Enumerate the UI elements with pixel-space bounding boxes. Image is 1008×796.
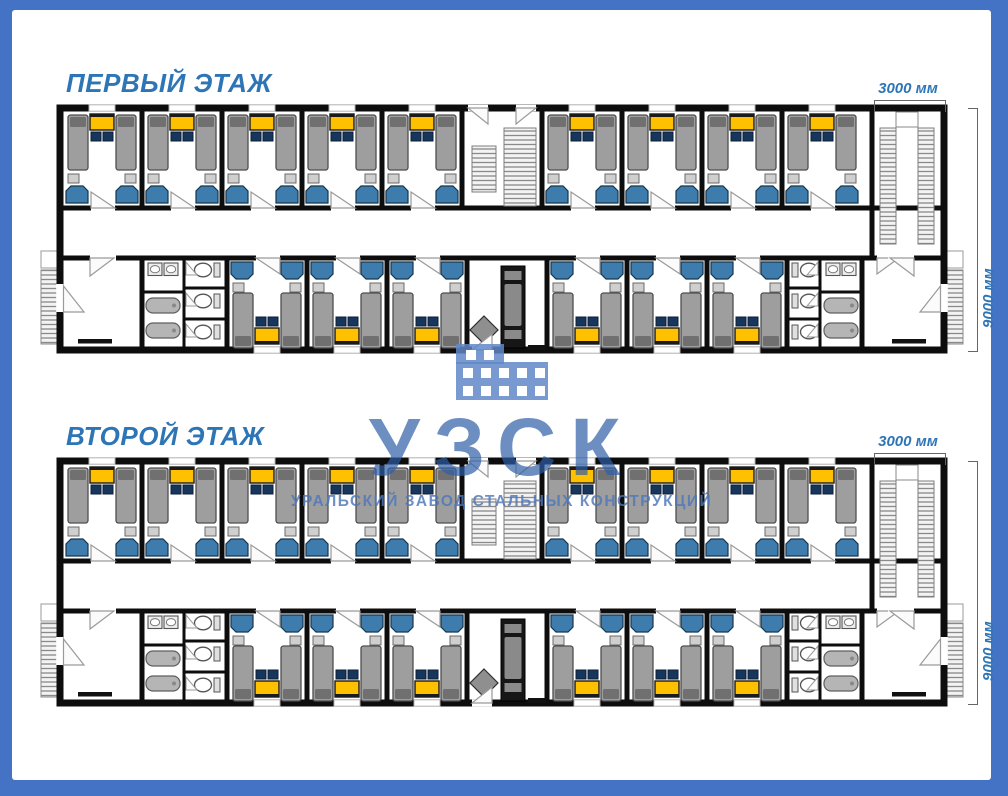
dining-table (810, 114, 834, 130)
nightstand (765, 174, 776, 183)
chair (343, 132, 353, 141)
chair (743, 132, 753, 141)
wardrobe (546, 539, 568, 556)
sink (826, 263, 840, 276)
bed (68, 115, 88, 170)
wardrobe (441, 262, 463, 279)
staircase (880, 128, 896, 244)
bed (148, 115, 168, 170)
chair (331, 132, 341, 141)
nightstand (205, 527, 216, 536)
wardrobe (626, 539, 648, 556)
nightstand (205, 174, 216, 183)
dining-table (655, 681, 679, 697)
dining-table (650, 467, 674, 483)
depth-dimension-bracket (968, 461, 978, 705)
dining-table (650, 114, 674, 130)
nightstand (708, 527, 719, 536)
wardrobe (711, 615, 733, 632)
window (254, 700, 280, 706)
bed (116, 115, 136, 170)
chair (263, 485, 273, 494)
doormat (528, 698, 546, 703)
bed (313, 646, 333, 701)
bed (836, 115, 856, 170)
nightstand (228, 527, 239, 536)
nightstand (633, 636, 644, 645)
wardrobe (626, 186, 648, 203)
wardrobe (551, 262, 573, 279)
wardrobe (196, 539, 218, 556)
chair (668, 670, 678, 679)
nightstand (370, 636, 381, 645)
window (574, 700, 600, 706)
bed (228, 115, 248, 170)
second-floor-section: ВТОРОЙ ЭТАЖ 3000 мм 9000 мм (32, 411, 1008, 719)
chair (268, 670, 278, 679)
nightstand (605, 174, 616, 183)
wardrobe (66, 186, 88, 203)
dining-table (255, 328, 279, 344)
chair (336, 317, 346, 326)
window (249, 458, 275, 464)
sink (842, 263, 856, 276)
nightstand (313, 283, 324, 292)
first-floor-plan (32, 102, 977, 358)
chair (583, 485, 593, 494)
dining-table (90, 114, 114, 130)
nightstand (690, 283, 701, 292)
bed (548, 468, 568, 523)
chair (748, 670, 758, 679)
window (809, 458, 835, 464)
staircase (472, 499, 496, 545)
nightstand (548, 527, 559, 536)
nightstand (125, 174, 136, 183)
doormat (78, 339, 112, 344)
nightstand (548, 174, 559, 183)
bed (761, 646, 781, 701)
window (409, 458, 435, 464)
wardrobe (386, 186, 408, 203)
nightstand (553, 636, 564, 645)
wardrobe (706, 186, 728, 203)
chair (811, 132, 821, 141)
nightstand (388, 527, 399, 536)
doormat (528, 345, 546, 350)
bed (196, 115, 216, 170)
nightstand (393, 636, 404, 645)
sink (148, 263, 162, 276)
wardrobe (676, 539, 698, 556)
bed (548, 115, 568, 170)
window (329, 458, 355, 464)
bed (756, 115, 776, 170)
chair (811, 485, 821, 494)
chair (576, 670, 586, 679)
wardrobe (231, 615, 253, 632)
wardrobe (761, 262, 783, 279)
window (409, 105, 435, 111)
nightstand (685, 527, 696, 536)
chair (171, 485, 181, 494)
window (334, 347, 360, 353)
chair (823, 132, 833, 141)
wardrobe (836, 539, 858, 556)
width-dimension-label: 3000 мм (852, 433, 964, 450)
chair (743, 485, 753, 494)
bathtub (146, 651, 180, 666)
first-floor-section: ПЕРВЫЙ ЭТАЖ 3000 мм 9000 мм (32, 58, 1008, 366)
dining-table (570, 467, 594, 483)
dining-table (415, 328, 439, 344)
nightstand (233, 283, 244, 292)
chair (343, 485, 353, 494)
doormat (892, 339, 926, 344)
bathtub (146, 298, 180, 313)
nightstand (290, 283, 301, 292)
chair (348, 317, 358, 326)
toilet (195, 616, 221, 630)
nightstand (148, 174, 159, 183)
bed (313, 293, 333, 348)
wardrobe (756, 186, 778, 203)
window (729, 105, 755, 111)
toilet (195, 294, 221, 308)
nightstand (845, 174, 856, 183)
window (169, 458, 195, 464)
nightstand (690, 636, 701, 645)
bed (361, 293, 381, 348)
wardrobe (146, 539, 168, 556)
chair (256, 670, 266, 679)
window (809, 105, 835, 111)
bed (308, 468, 328, 523)
dining-table (655, 328, 679, 344)
bathtub (824, 298, 858, 313)
wardrobe (306, 186, 328, 203)
wardrobe (311, 615, 333, 632)
window (734, 347, 760, 353)
bed (388, 115, 408, 170)
bed (676, 115, 696, 170)
floor-plan (41, 105, 963, 354)
chair (183, 485, 193, 494)
second-floor-plan (32, 455, 977, 711)
window (654, 700, 680, 706)
wardrobe (836, 186, 858, 203)
wardrobe (631, 615, 653, 632)
nightstand (370, 283, 381, 292)
chair (823, 485, 833, 494)
bed (708, 468, 728, 523)
chair (268, 317, 278, 326)
bed (788, 115, 808, 170)
nightstand (365, 174, 376, 183)
sink (826, 616, 840, 629)
sink (164, 263, 178, 276)
wardrobe (786, 539, 808, 556)
wardrobe (391, 262, 413, 279)
bed (436, 115, 456, 170)
wardrobe (441, 615, 463, 632)
nightstand (610, 283, 621, 292)
chair (183, 132, 193, 141)
nightstand (228, 174, 239, 183)
bed (601, 646, 621, 701)
bathtub (824, 323, 858, 338)
nightstand (365, 527, 376, 536)
nightstand (450, 283, 461, 292)
bed (761, 293, 781, 348)
sink (164, 616, 178, 629)
nightstand (285, 174, 296, 183)
dining-table (570, 114, 594, 130)
bed (553, 646, 573, 701)
dining-table (330, 114, 354, 130)
window (649, 458, 675, 464)
window (729, 458, 755, 464)
nightstand (290, 636, 301, 645)
window (569, 458, 595, 464)
chair (656, 670, 666, 679)
nightstand (445, 527, 456, 536)
window (329, 105, 355, 111)
chair (656, 317, 666, 326)
chair (91, 485, 101, 494)
toilet (195, 678, 221, 692)
floor-plan (41, 458, 963, 707)
chair (668, 317, 678, 326)
wardrobe (386, 539, 408, 556)
nightstand (770, 636, 781, 645)
window (334, 700, 360, 706)
dining-table (250, 467, 274, 483)
bed (393, 646, 413, 701)
dining-table (335, 681, 359, 697)
washroom-left (142, 258, 227, 350)
chair (428, 317, 438, 326)
wardrobe (706, 539, 728, 556)
width-dimension-label: 3000 мм (852, 80, 964, 97)
staircase (880, 481, 896, 597)
window (649, 105, 675, 111)
wardrobe (196, 186, 218, 203)
bed (281, 293, 301, 348)
bed (436, 468, 456, 523)
nightstand (713, 283, 724, 292)
window (569, 105, 595, 111)
nightstand (770, 283, 781, 292)
dining-table (330, 467, 354, 483)
chair (663, 485, 673, 494)
chair (731, 485, 741, 494)
dining-table (810, 467, 834, 483)
toilet (195, 325, 221, 339)
wardrobe (281, 262, 303, 279)
bathtub (146, 323, 180, 338)
wardrobe (711, 262, 733, 279)
doormat (78, 692, 112, 697)
second-floor-title: ВТОРОЙ ЭТАЖ (66, 421, 264, 452)
nightstand (708, 174, 719, 183)
chair (263, 132, 273, 141)
depth-dimension-label: 9000 мм (980, 208, 997, 328)
washroom-left (142, 611, 227, 703)
wardrobe (601, 262, 623, 279)
chair (571, 485, 581, 494)
bathtub (824, 676, 858, 691)
dining-table (170, 467, 194, 483)
nightstand (393, 283, 404, 292)
wardrobe (231, 262, 253, 279)
nightstand (628, 527, 639, 536)
window (414, 347, 440, 353)
bed (116, 468, 136, 523)
bed (281, 646, 301, 701)
bed (681, 293, 701, 348)
bed (756, 468, 776, 523)
chair (428, 670, 438, 679)
dining-table (730, 114, 754, 130)
bed (628, 115, 648, 170)
wardrobe (116, 539, 138, 556)
nightstand (125, 527, 136, 536)
width-dimension-bracket (874, 100, 946, 112)
chair (251, 485, 261, 494)
wardrobe (226, 539, 248, 556)
window (89, 105, 115, 111)
wardrobe (601, 615, 623, 632)
bed (708, 115, 728, 170)
depth-dimension-label: 9000 мм (980, 561, 997, 681)
wardrobe (391, 615, 413, 632)
chair (736, 670, 746, 679)
nightstand (68, 527, 79, 536)
window (734, 700, 760, 706)
nightstand (285, 527, 296, 536)
wardrobe (361, 615, 383, 632)
sink (148, 616, 162, 629)
chair (576, 317, 586, 326)
dining-table (410, 114, 434, 130)
chair (256, 317, 266, 326)
chair (651, 132, 661, 141)
toilet (195, 263, 221, 277)
chair (331, 485, 341, 494)
bed (148, 468, 168, 523)
wardrobe (356, 186, 378, 203)
wardrobe (146, 186, 168, 203)
chair (748, 317, 758, 326)
bed (633, 646, 653, 701)
wardrobe (596, 539, 618, 556)
window (169, 105, 195, 111)
dining-table (730, 467, 754, 483)
dining-table (255, 681, 279, 697)
dining-table (335, 328, 359, 344)
wardrobe (361, 262, 383, 279)
dining-table (170, 114, 194, 130)
staircase (472, 146, 496, 192)
wardrobe (786, 186, 808, 203)
wardrobe (276, 539, 298, 556)
bed (361, 646, 381, 701)
nightstand (68, 174, 79, 183)
dining-table (735, 328, 759, 344)
nightstand (765, 527, 776, 536)
sink (842, 616, 856, 629)
chair (588, 317, 598, 326)
dining-table (410, 467, 434, 483)
bed (276, 468, 296, 523)
chair (423, 485, 433, 494)
nightstand (313, 636, 324, 645)
wardrobe (281, 615, 303, 632)
dining-table (735, 681, 759, 697)
bed (633, 293, 653, 348)
bed (441, 646, 461, 701)
bed (596, 468, 616, 523)
toilet (195, 647, 221, 661)
bed (228, 468, 248, 523)
wardrobe (276, 186, 298, 203)
bed (596, 115, 616, 170)
chair (571, 132, 581, 141)
chair (583, 132, 593, 141)
nightstand (633, 283, 644, 292)
chair (251, 132, 261, 141)
bed (441, 293, 461, 348)
chair (423, 132, 433, 141)
dining-table (250, 114, 274, 130)
wardrobe (66, 539, 88, 556)
wardrobe (681, 615, 703, 632)
bed (553, 293, 573, 348)
chair (348, 670, 358, 679)
bed (356, 115, 376, 170)
window (249, 105, 275, 111)
chair (588, 670, 598, 679)
chair (736, 317, 746, 326)
wardrobe (676, 186, 698, 203)
bed (836, 468, 856, 523)
window (654, 347, 680, 353)
nightstand (553, 283, 564, 292)
staircase (504, 128, 536, 206)
chair (731, 132, 741, 141)
wardrobe (311, 262, 333, 279)
nightstand (233, 636, 244, 645)
bed (68, 468, 88, 523)
bed (713, 646, 733, 701)
bed (233, 646, 253, 701)
nightstand (308, 527, 319, 536)
nightstand (788, 174, 799, 183)
nightstand (788, 527, 799, 536)
chair (663, 132, 673, 141)
nightstand (148, 527, 159, 536)
chair (103, 485, 113, 494)
bed (681, 646, 701, 701)
page: ПЕРВЫЙ ЭТАЖ 3000 мм 9000 мм ВТОРОЙ ЭТАЖ … (0, 0, 1008, 796)
nightstand (845, 527, 856, 536)
staircase (918, 481, 934, 597)
dining-table (415, 681, 439, 697)
wardrobe (116, 186, 138, 203)
nightstand (713, 636, 724, 645)
dining-table (90, 467, 114, 483)
